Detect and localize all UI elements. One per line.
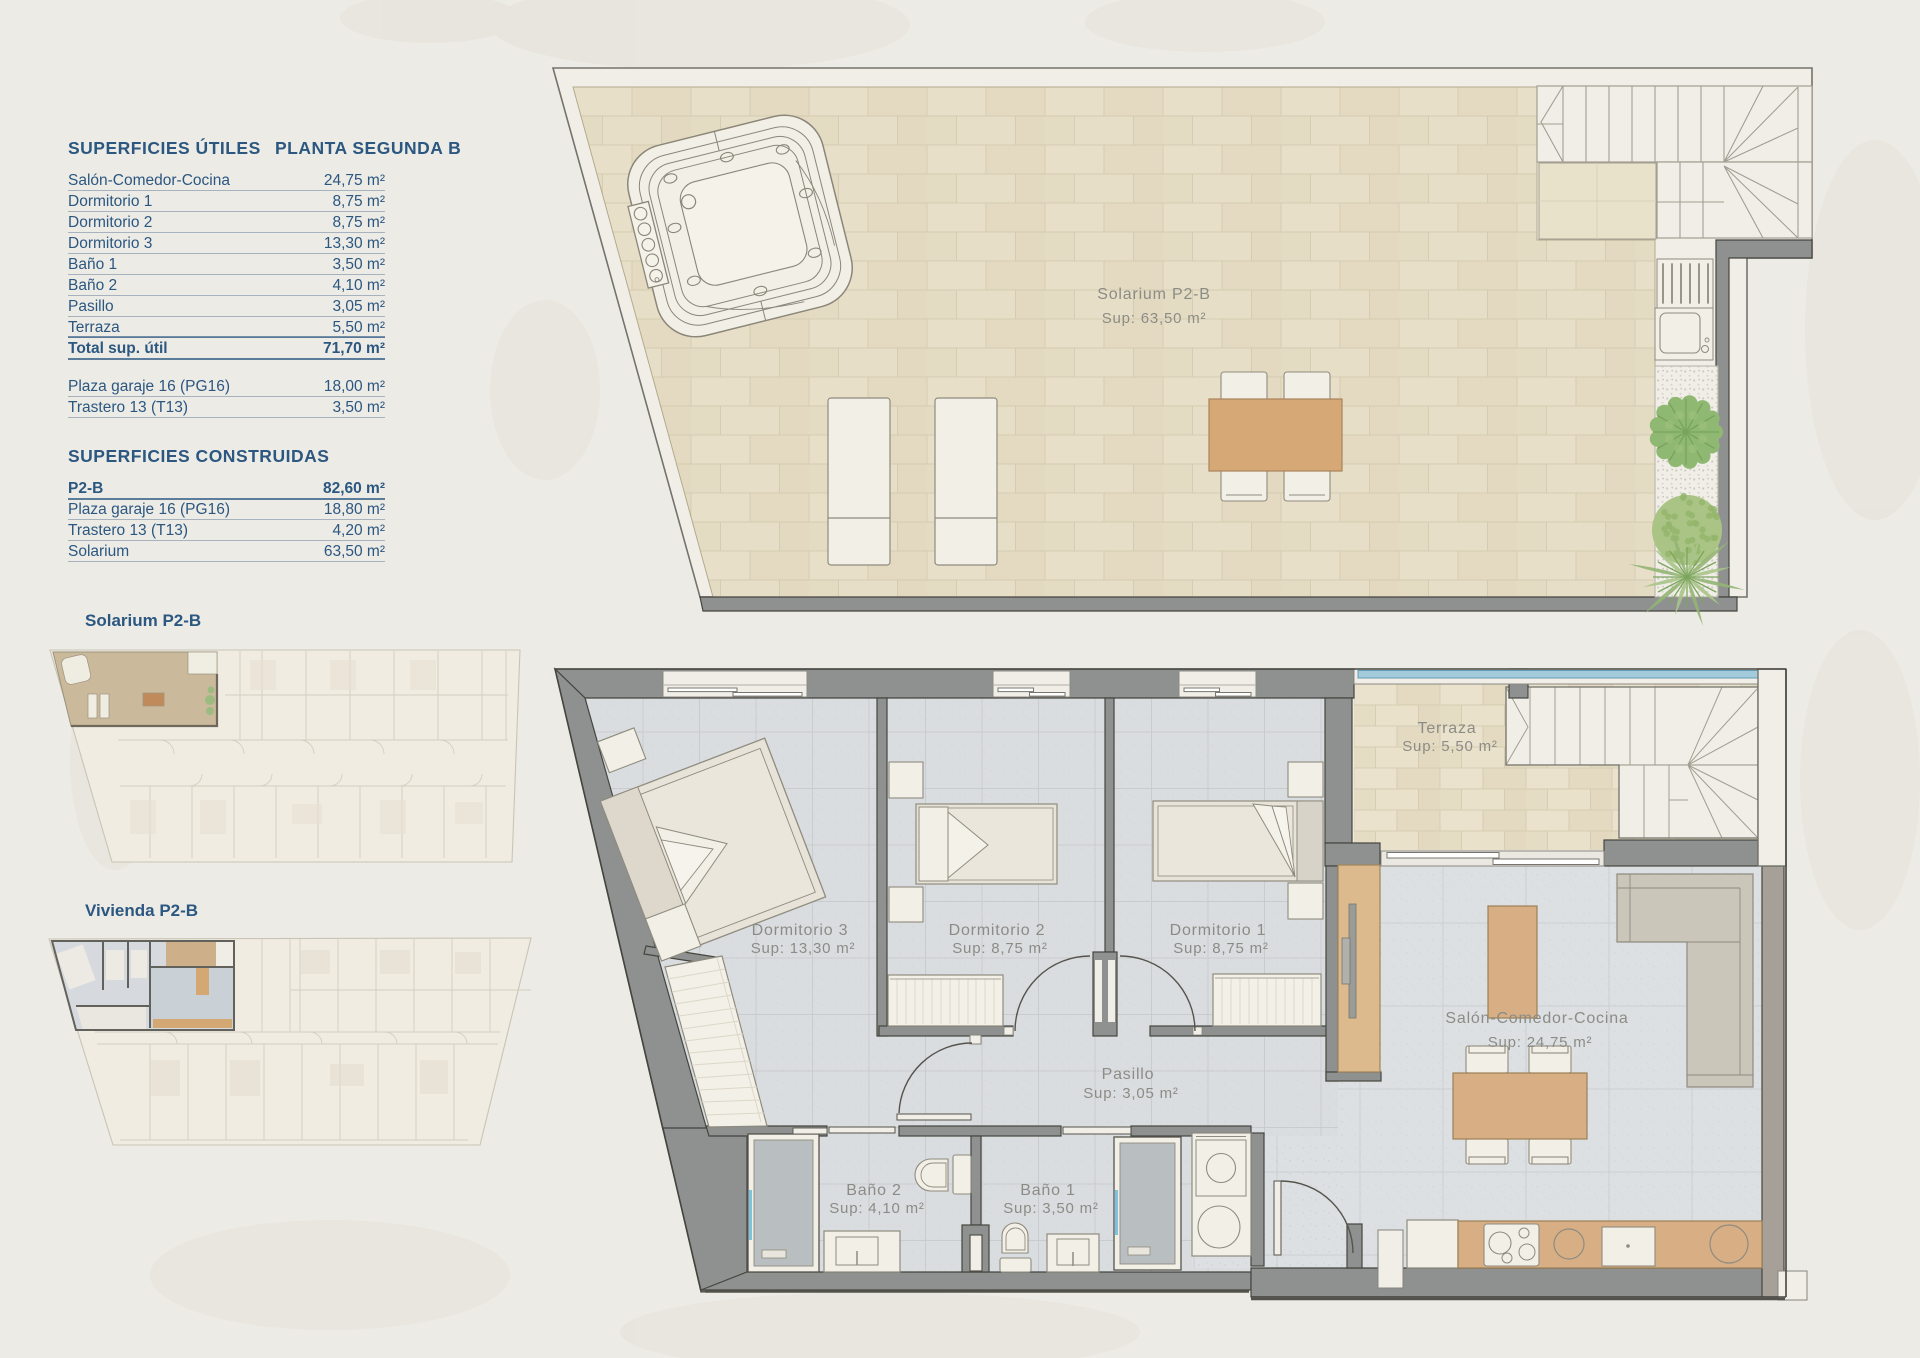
svg-text:Dormitorio 1: Dormitorio 1 xyxy=(68,193,152,210)
svg-text:Sup: 5,50 m²: Sup: 5,50 m² xyxy=(1402,738,1497,755)
svg-text:Solarium P2-B: Solarium P2-B xyxy=(85,611,201,630)
svg-text:4,10 m²: 4,10 m² xyxy=(332,277,385,294)
svg-text:Dormitorio 3: Dormitorio 3 xyxy=(68,235,152,252)
svg-text:3,50 m²: 3,50 m² xyxy=(332,399,385,416)
svg-text:Sup: 3,50 m²: Sup: 3,50 m² xyxy=(1003,1200,1098,1217)
svg-text:Sup: 8,75 m²: Sup: 8,75 m² xyxy=(1173,940,1268,957)
svg-text:Terraza: Terraza xyxy=(1418,720,1477,737)
svg-text:24,75 m²: 24,75 m² xyxy=(324,172,385,189)
svg-text:18,80 m²: 18,80 m² xyxy=(324,501,385,518)
svg-text:Pasillo: Pasillo xyxy=(1102,1066,1155,1083)
svg-text:Total sup. útil: Total sup. útil xyxy=(68,340,168,357)
svg-text:3,50 m²: 3,50 m² xyxy=(332,256,385,273)
svg-text:Plaza garaje 16 (PG16): Plaza garaje 16 (PG16) xyxy=(68,501,230,518)
svg-text:3,05 m²: 3,05 m² xyxy=(332,298,385,315)
svg-text:Sup: 8,75 m²: Sup: 8,75 m² xyxy=(952,940,1047,957)
svg-text:Baño 2: Baño 2 xyxy=(68,277,117,294)
svg-text:Dormitorio 3: Dormitorio 3 xyxy=(752,922,849,939)
svg-text:Baño 1: Baño 1 xyxy=(68,256,117,273)
svg-text:8,75 m²: 8,75 m² xyxy=(332,214,385,231)
svg-text:5,50 m²: 5,50 m² xyxy=(332,319,385,336)
svg-text:Sup: 4,10 m²: Sup: 4,10 m² xyxy=(829,1200,924,1217)
svg-text:Trastero 13 (T13): Trastero 13 (T13) xyxy=(68,399,188,416)
svg-text:SUPERFICIES ÚTILES: SUPERFICIES ÚTILES xyxy=(68,137,261,158)
svg-text:Salón-Comedor-Cocina: Salón-Comedor-Cocina xyxy=(68,172,230,189)
svg-text:Trastero 13 (T13): Trastero 13 (T13) xyxy=(68,522,188,539)
svg-text:Plaza garaje 16 (PG16): Plaza garaje 16 (PG16) xyxy=(68,378,230,395)
svg-text:Sup: 13,30 m²: Sup: 13,30 m² xyxy=(751,940,856,957)
svg-text:Sup: 24,75 m²: Sup: 24,75 m² xyxy=(1488,1034,1593,1051)
svg-text:71,70 m²: 71,70 m² xyxy=(323,340,385,357)
svg-text:Baño 2: Baño 2 xyxy=(846,1182,902,1199)
svg-text:P2-B: P2-B xyxy=(68,480,103,497)
svg-text:Dormitorio 2: Dormitorio 2 xyxy=(68,214,152,231)
svg-text:Pasillo: Pasillo xyxy=(68,298,114,315)
svg-text:18,00 m²: 18,00 m² xyxy=(324,378,385,395)
svg-text:SUPERFICIES CONSTRUIDAS: SUPERFICIES CONSTRUIDAS xyxy=(68,446,329,466)
svg-text:Vivienda P2-B: Vivienda P2-B xyxy=(85,901,198,920)
svg-text:4,20 m²: 4,20 m² xyxy=(332,522,385,539)
svg-text:PLANTA SEGUNDA B: PLANTA SEGUNDA B xyxy=(275,138,461,158)
svg-text:63,50 m²: 63,50 m² xyxy=(324,543,385,560)
svg-text:8,75 m²: 8,75 m² xyxy=(332,193,385,210)
svg-text:82,60 m²: 82,60 m² xyxy=(323,480,385,497)
svg-text:Sup: 63,50 m²: Sup: 63,50 m² xyxy=(1102,310,1207,327)
svg-text:Terraza: Terraza xyxy=(68,319,120,336)
svg-text:13,30 m²: 13,30 m² xyxy=(324,235,385,252)
svg-text:Salón-Comedor-Cocina: Salón-Comedor-Cocina xyxy=(1445,1010,1628,1027)
svg-text:Baño 1: Baño 1 xyxy=(1020,1182,1076,1199)
svg-text:Sup: 3,05 m²: Sup: 3,05 m² xyxy=(1083,1085,1178,1102)
svg-text:Solarium P2-B: Solarium P2-B xyxy=(1097,286,1211,303)
svg-text:Solarium: Solarium xyxy=(68,543,129,560)
svg-text:Dormitorio 2: Dormitorio 2 xyxy=(949,922,1046,939)
svg-text:Dormitorio 1: Dormitorio 1 xyxy=(1170,922,1267,939)
